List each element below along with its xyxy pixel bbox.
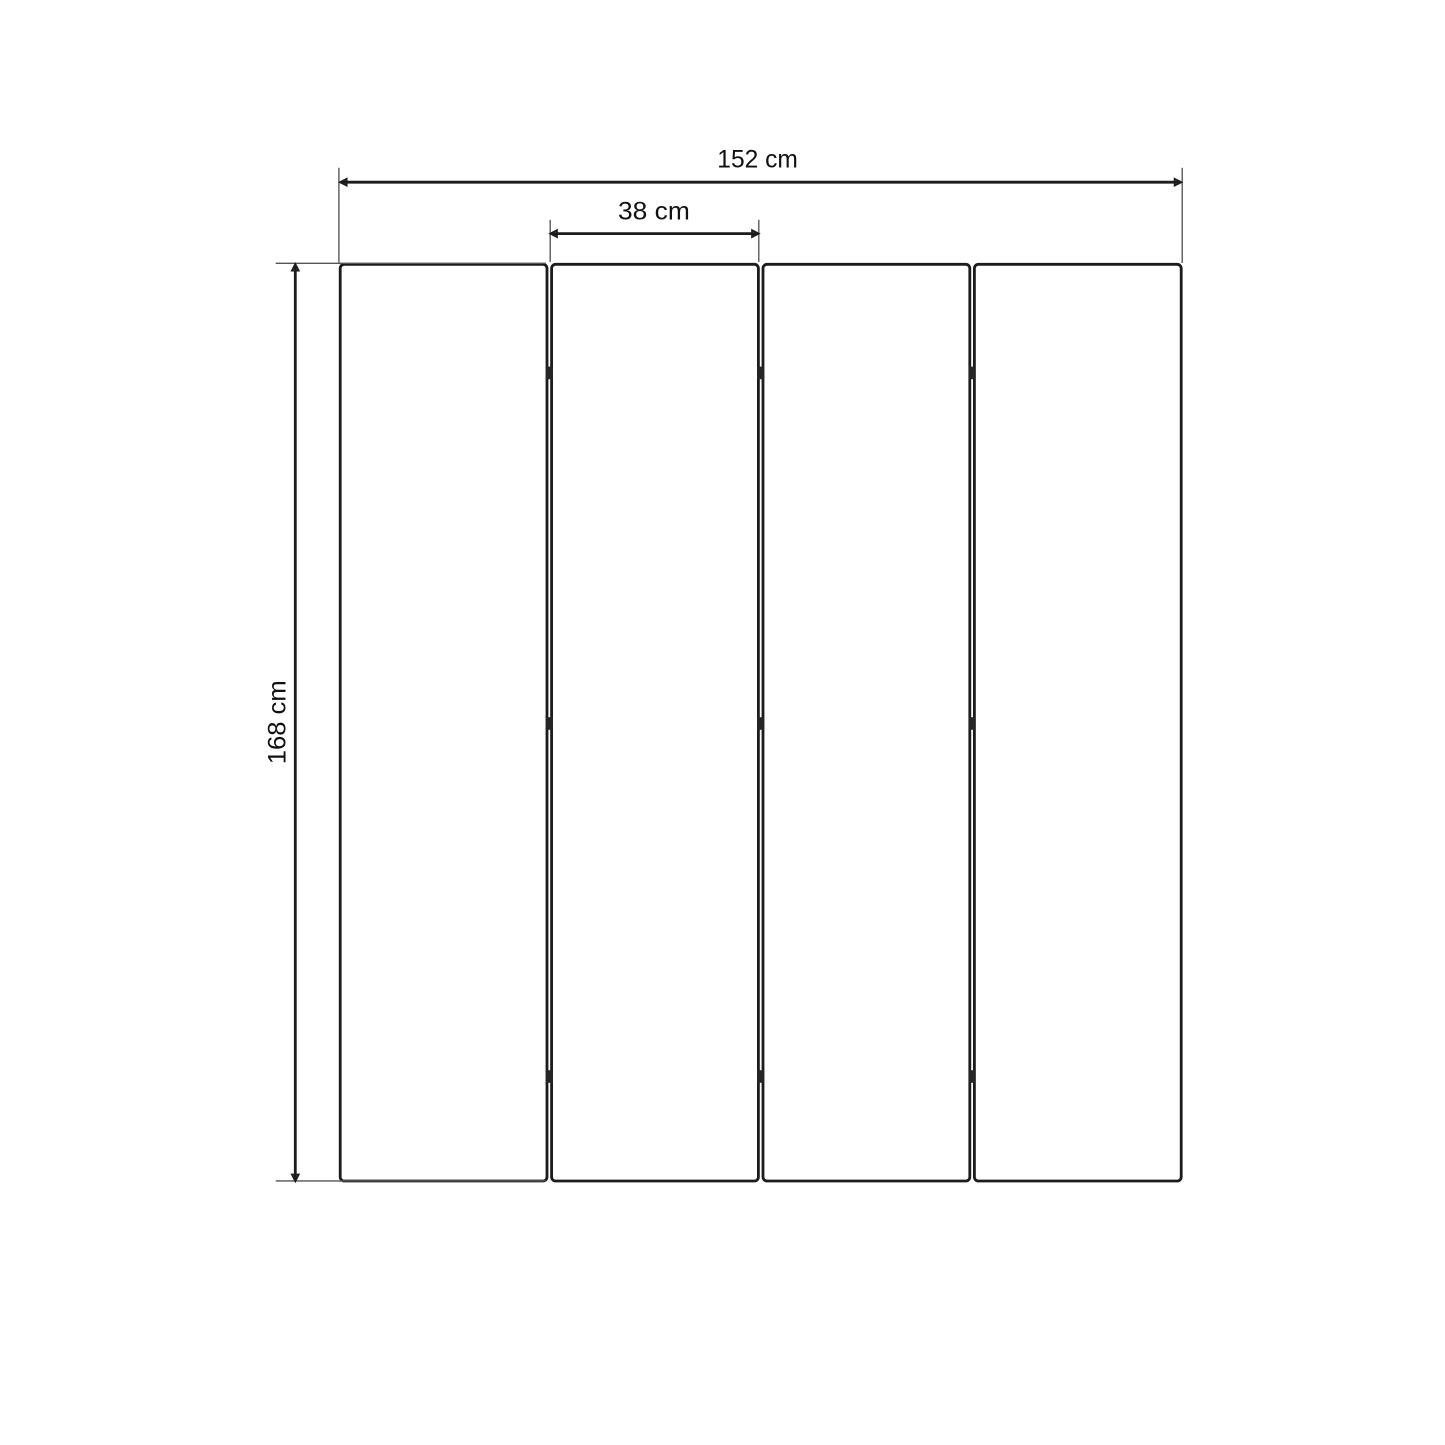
svg-text:152 cm: 152 cm (717, 146, 798, 174)
svg-text:38 cm: 38 cm (618, 198, 690, 226)
svg-text:168 cm: 168 cm (264, 680, 292, 764)
